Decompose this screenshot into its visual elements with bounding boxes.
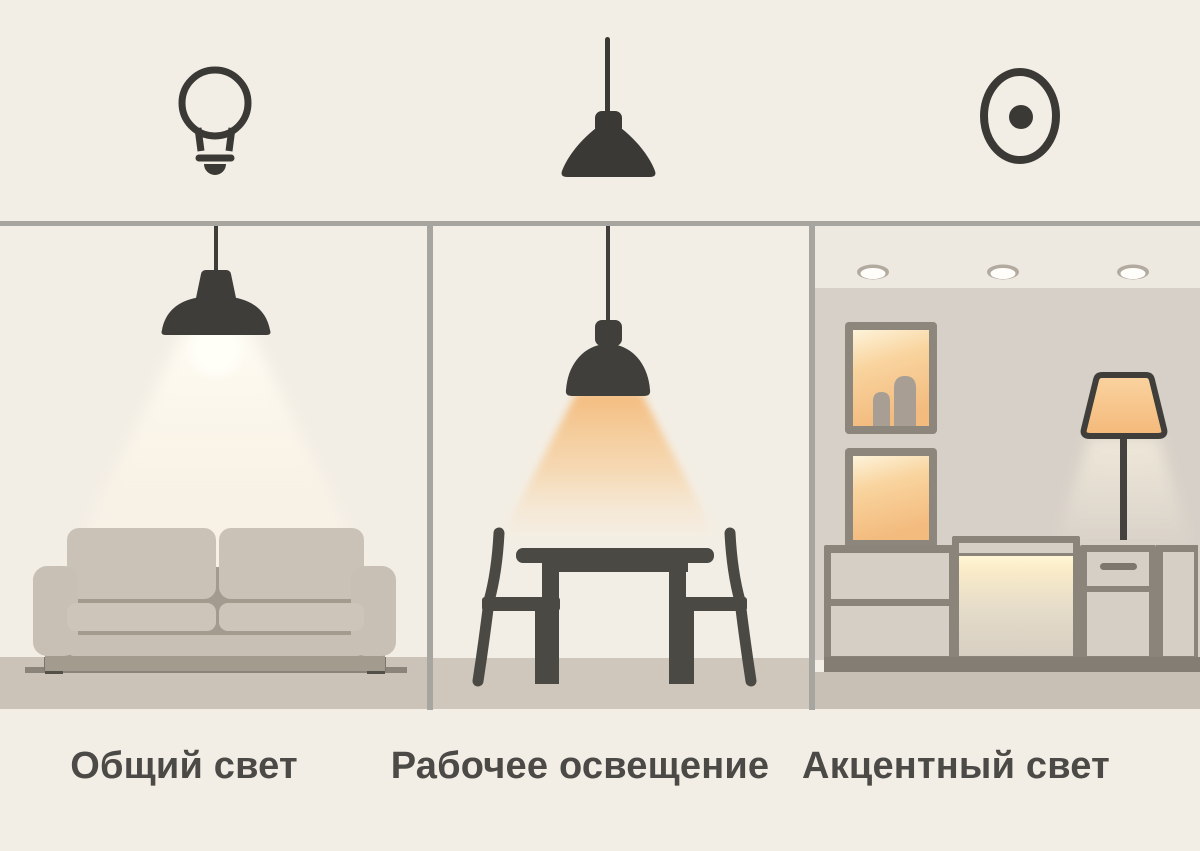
drawer-handle	[1100, 563, 1137, 570]
pendant-neck	[595, 320, 622, 346]
panel-divider-1	[427, 221, 433, 710]
seat-cushion	[219, 603, 364, 631]
panel-divider-2	[809, 221, 815, 710]
pendant-lamp-icon	[562, 37, 656, 177]
back-cushion	[219, 528, 364, 599]
panel-label-task: Рабочее освещение	[391, 744, 769, 788]
pendant-shade	[162, 296, 271, 335]
recessed-downlight	[857, 265, 889, 280]
sideboard-cabinets	[824, 536, 1198, 662]
vase-tall	[894, 376, 916, 426]
lit-wall-niche-upper	[845, 322, 937, 434]
warm-light-cone	[502, 392, 716, 536]
drawer-front	[831, 553, 949, 599]
drawer-front	[831, 606, 949, 656]
sofa-front-panel	[67, 635, 364, 656]
chair-seat	[669, 597, 747, 611]
bulb-icon	[182, 70, 248, 175]
pendant-cord	[606, 224, 610, 326]
chair-leg	[683, 603, 694, 684]
general-light-scene	[0, 224, 428, 709]
cabinet-door	[1163, 552, 1194, 656]
lighting-types-infographic: Общий свет Рабочее освещение Акцентный с…	[0, 0, 1200, 851]
pendant-neck	[196, 270, 236, 298]
pendant-shade	[566, 344, 650, 396]
panel-label-general: Общий свет	[70, 744, 298, 788]
sofa	[25, 528, 407, 674]
recessed-downlight	[987, 265, 1019, 280]
backlit-cabinet-panel	[959, 556, 1073, 656]
pendant-lamp	[162, 224, 271, 335]
table-apron	[542, 560, 688, 572]
floor	[815, 672, 1200, 709]
cabinet-door	[1087, 592, 1149, 656]
seat-cushion	[67, 603, 216, 631]
chair-seat	[482, 597, 560, 611]
accent-light-scene	[815, 226, 1200, 709]
panel-label-accent: Акцентный свет	[802, 744, 1110, 788]
infographic-canvas	[0, 0, 1200, 851]
pendant-lamp	[566, 224, 650, 396]
ceiling-line	[0, 221, 1200, 226]
task-light-scene	[433, 224, 810, 709]
pendant-cord	[214, 224, 218, 272]
vase-small	[873, 392, 890, 426]
back-cushion	[67, 528, 216, 599]
floor-lamp-pole	[1120, 436, 1127, 540]
lit-wall-niche-lower	[845, 448, 937, 548]
floor-lamp-shade	[1084, 375, 1165, 436]
chair-leg	[535, 603, 546, 684]
cabinet-plinth	[824, 657, 1200, 674]
spotlight-icon	[984, 72, 1056, 160]
recessed-downlight	[1117, 265, 1149, 280]
